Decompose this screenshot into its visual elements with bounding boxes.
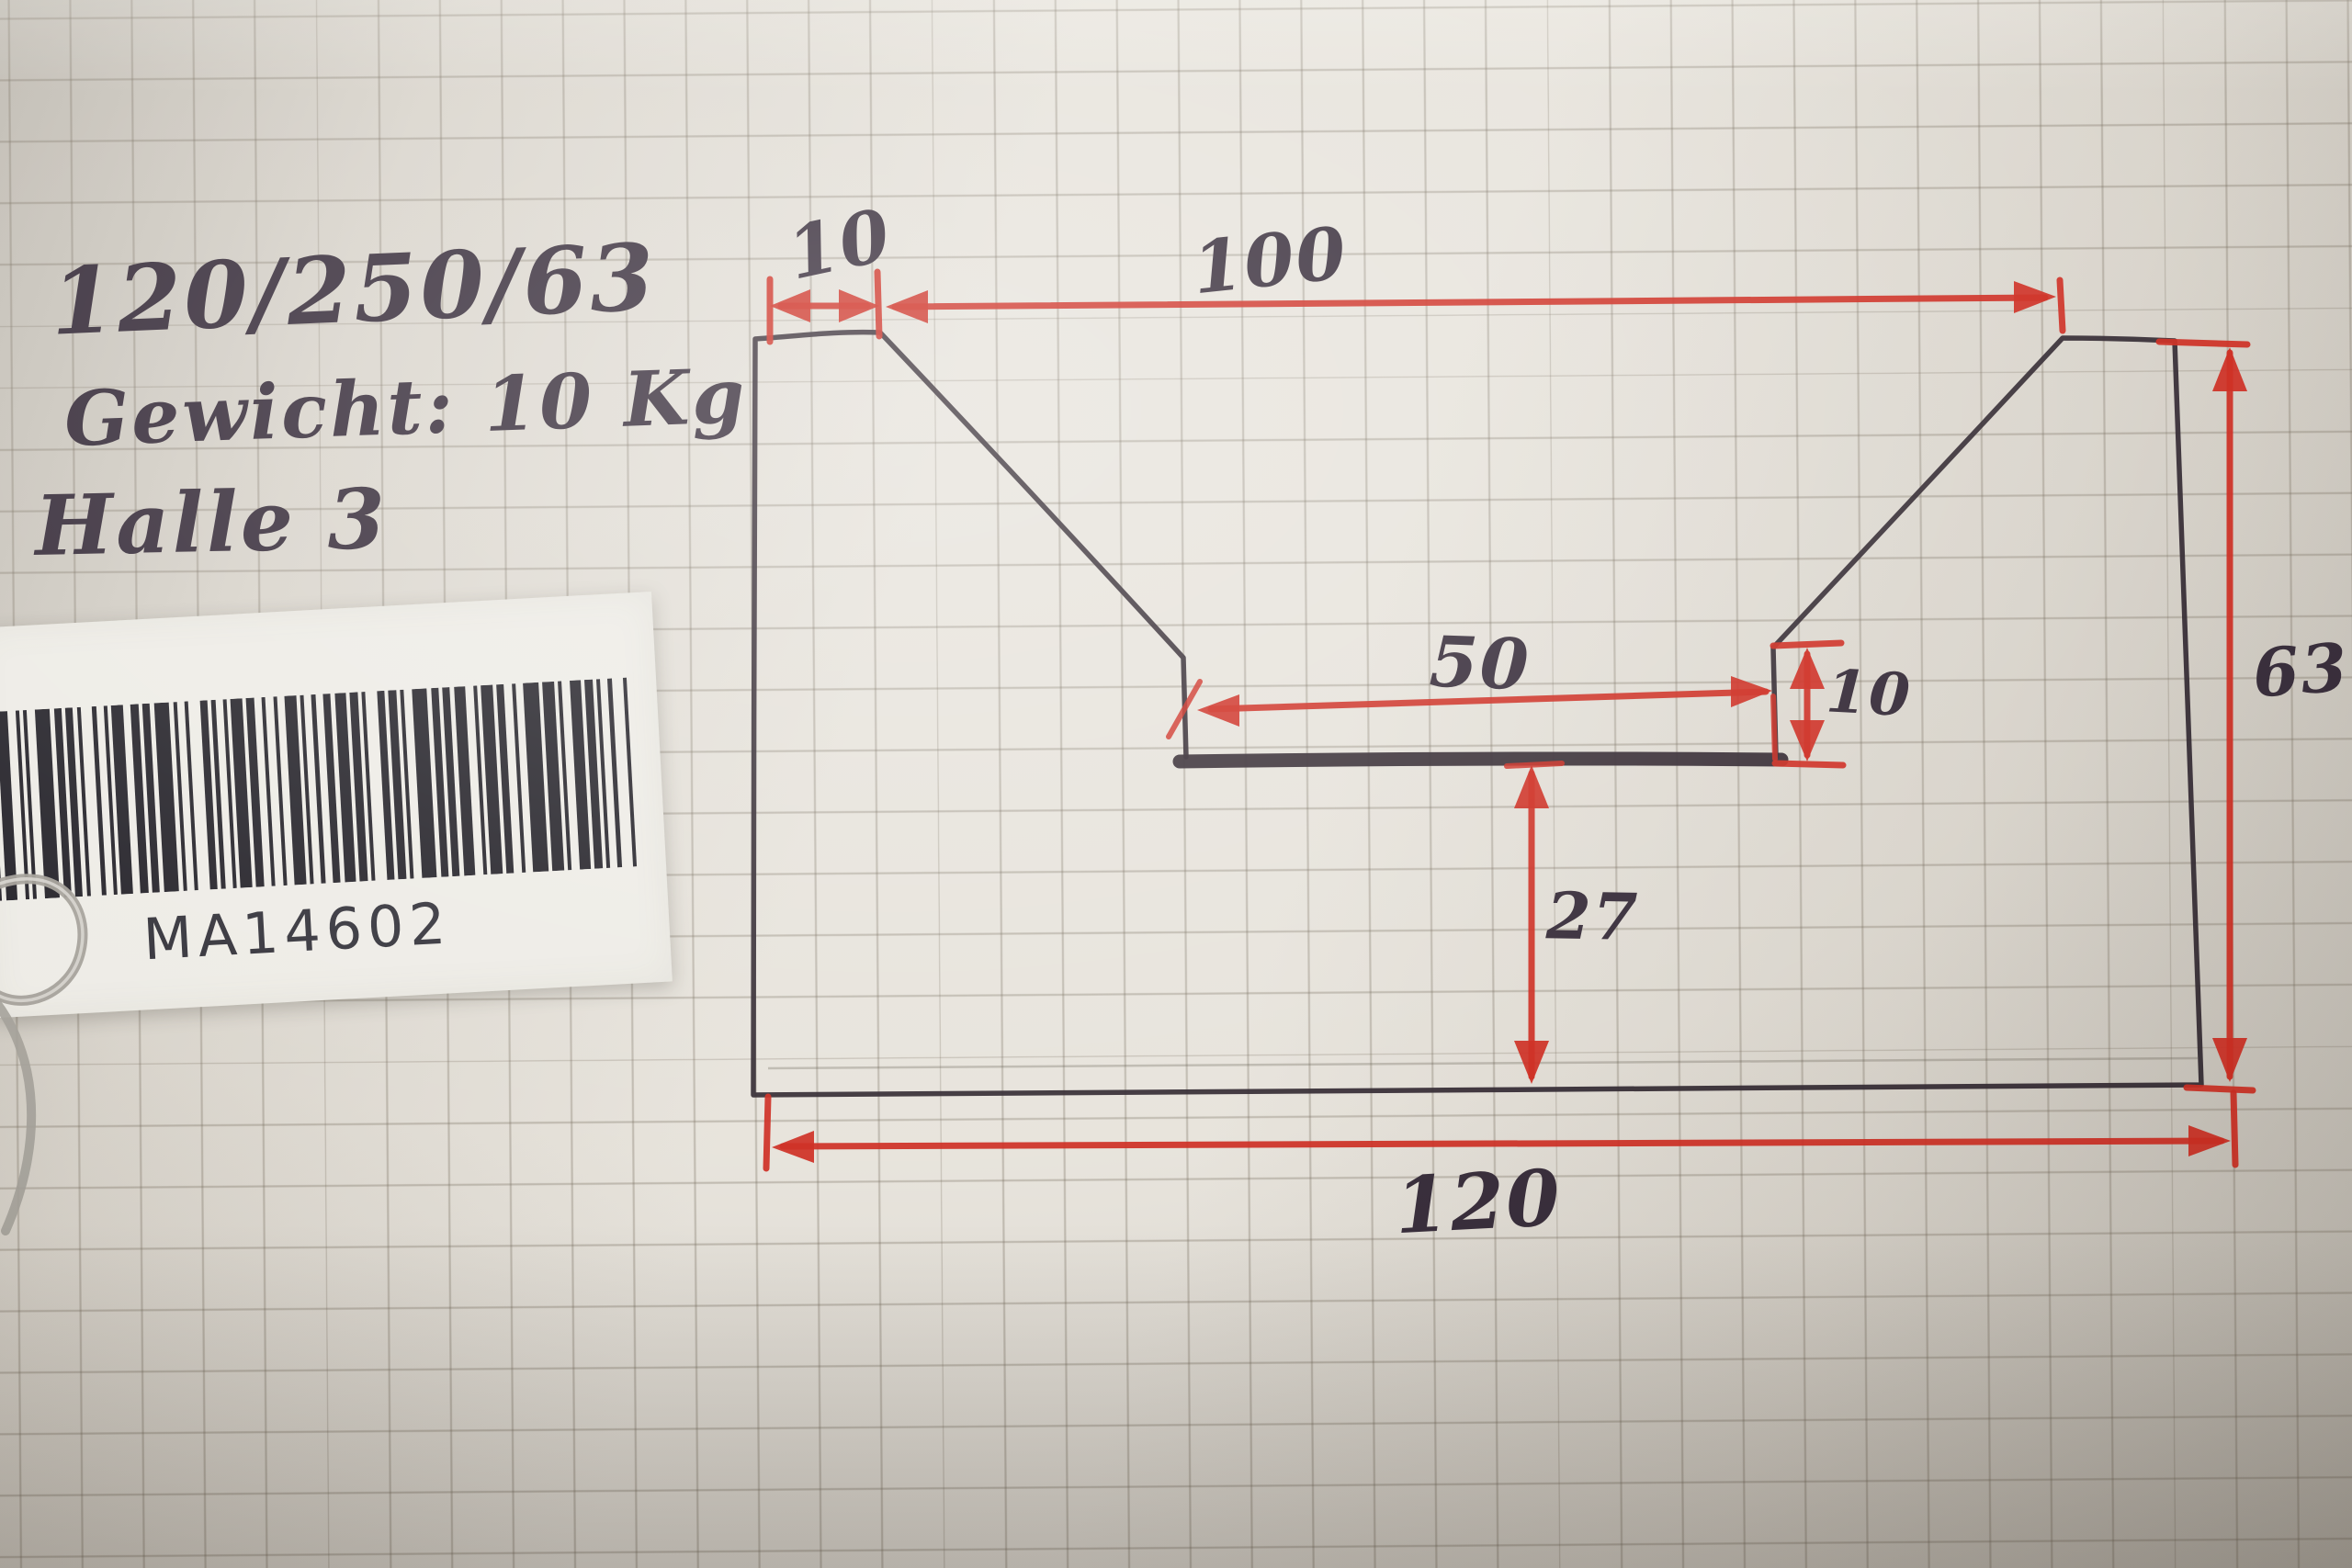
extension-tick (2159, 342, 2247, 344)
part-outline (753, 333, 2201, 1095)
dim-line (895, 298, 2045, 307)
dim-bottom-to-slot: 27 (1507, 763, 1640, 1084)
dim-label-bottom-to-slot: 27 (1544, 877, 1640, 955)
arrowhead (839, 289, 879, 322)
paperclip-icon (0, 850, 156, 1263)
dim-label-step-height: 10 (1825, 657, 1914, 730)
extension-tick (877, 272, 879, 336)
arrowhead (2188, 1125, 2231, 1156)
extension-tick (1773, 696, 1775, 759)
extension-tick (1507, 763, 1562, 766)
dim-line (783, 1141, 2222, 1146)
arrowhead (1790, 648, 1825, 689)
dim-label-corner-flat: 10 (781, 193, 899, 296)
arrowhead (1197, 694, 1239, 727)
dim-label-top-opening: 100 (1189, 211, 1351, 310)
dim-corner-flat: 10 (770, 193, 899, 342)
arrowhead (2212, 1038, 2247, 1082)
dim-label-height: 63 (2250, 627, 2351, 712)
arrowhead (2212, 347, 2247, 391)
dim-label-slot-width: 50 (1428, 620, 1532, 705)
arrowhead (1790, 720, 1825, 761)
extension-tick (1773, 643, 1841, 646)
arrowhead (886, 290, 928, 323)
extension-tick (2187, 1088, 2253, 1090)
extension-tick (2233, 1093, 2235, 1165)
photo-of-technical-sketch: 120/250/63 Gewicht: 10 Kg Halle 3 10 100 (0, 0, 2352, 1568)
extension-tick (766, 1097, 768, 1168)
extension-tick (2060, 280, 2063, 331)
arrowhead (1514, 765, 1549, 808)
arrowhead (2014, 281, 2056, 313)
dim-top-opening: 100 (886, 211, 2063, 331)
arrowhead (1731, 676, 1772, 707)
slot-bottom-edge (1180, 759, 1781, 761)
dim-width: 120 (766, 1093, 2235, 1251)
dim-step-height: 10 (1773, 643, 1914, 765)
pencil-guide-line (768, 1058, 2198, 1068)
dim-slot-width: 50 (1169, 620, 1775, 759)
extension-tick (1775, 763, 1843, 765)
dim-label-width: 120 (1393, 1152, 1564, 1251)
arrowhead (772, 1131, 814, 1163)
